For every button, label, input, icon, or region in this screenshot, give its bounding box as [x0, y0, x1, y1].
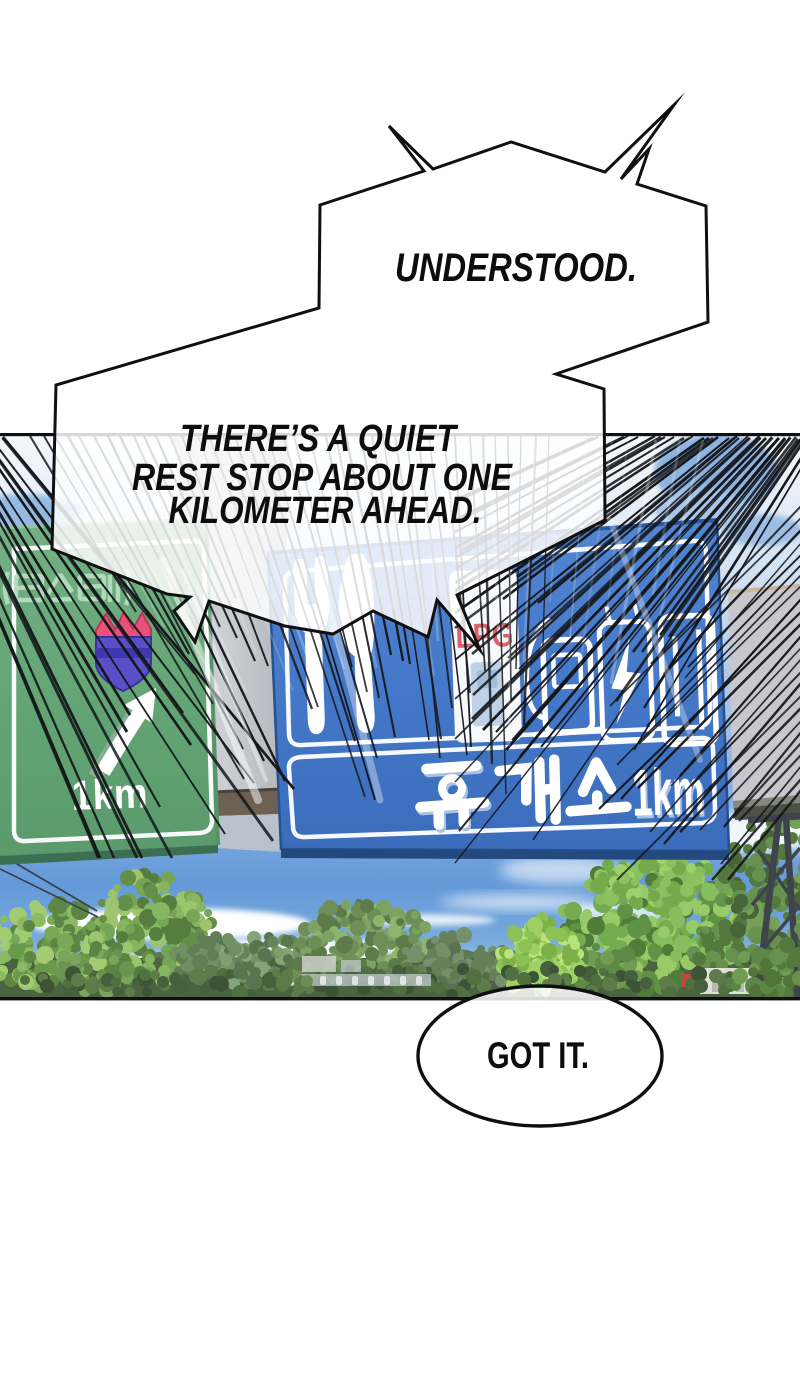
svg-text:UNDERSTOOD.: UNDERSTOOD.	[395, 246, 637, 290]
svg-text:GOT IT.: GOT IT.	[487, 1035, 589, 1076]
svg-text:KILOMETER AHEAD.: KILOMETER AHEAD.	[169, 490, 482, 532]
svg-text:THERE’S A QUIET: THERE’S A QUIET	[180, 418, 458, 460]
